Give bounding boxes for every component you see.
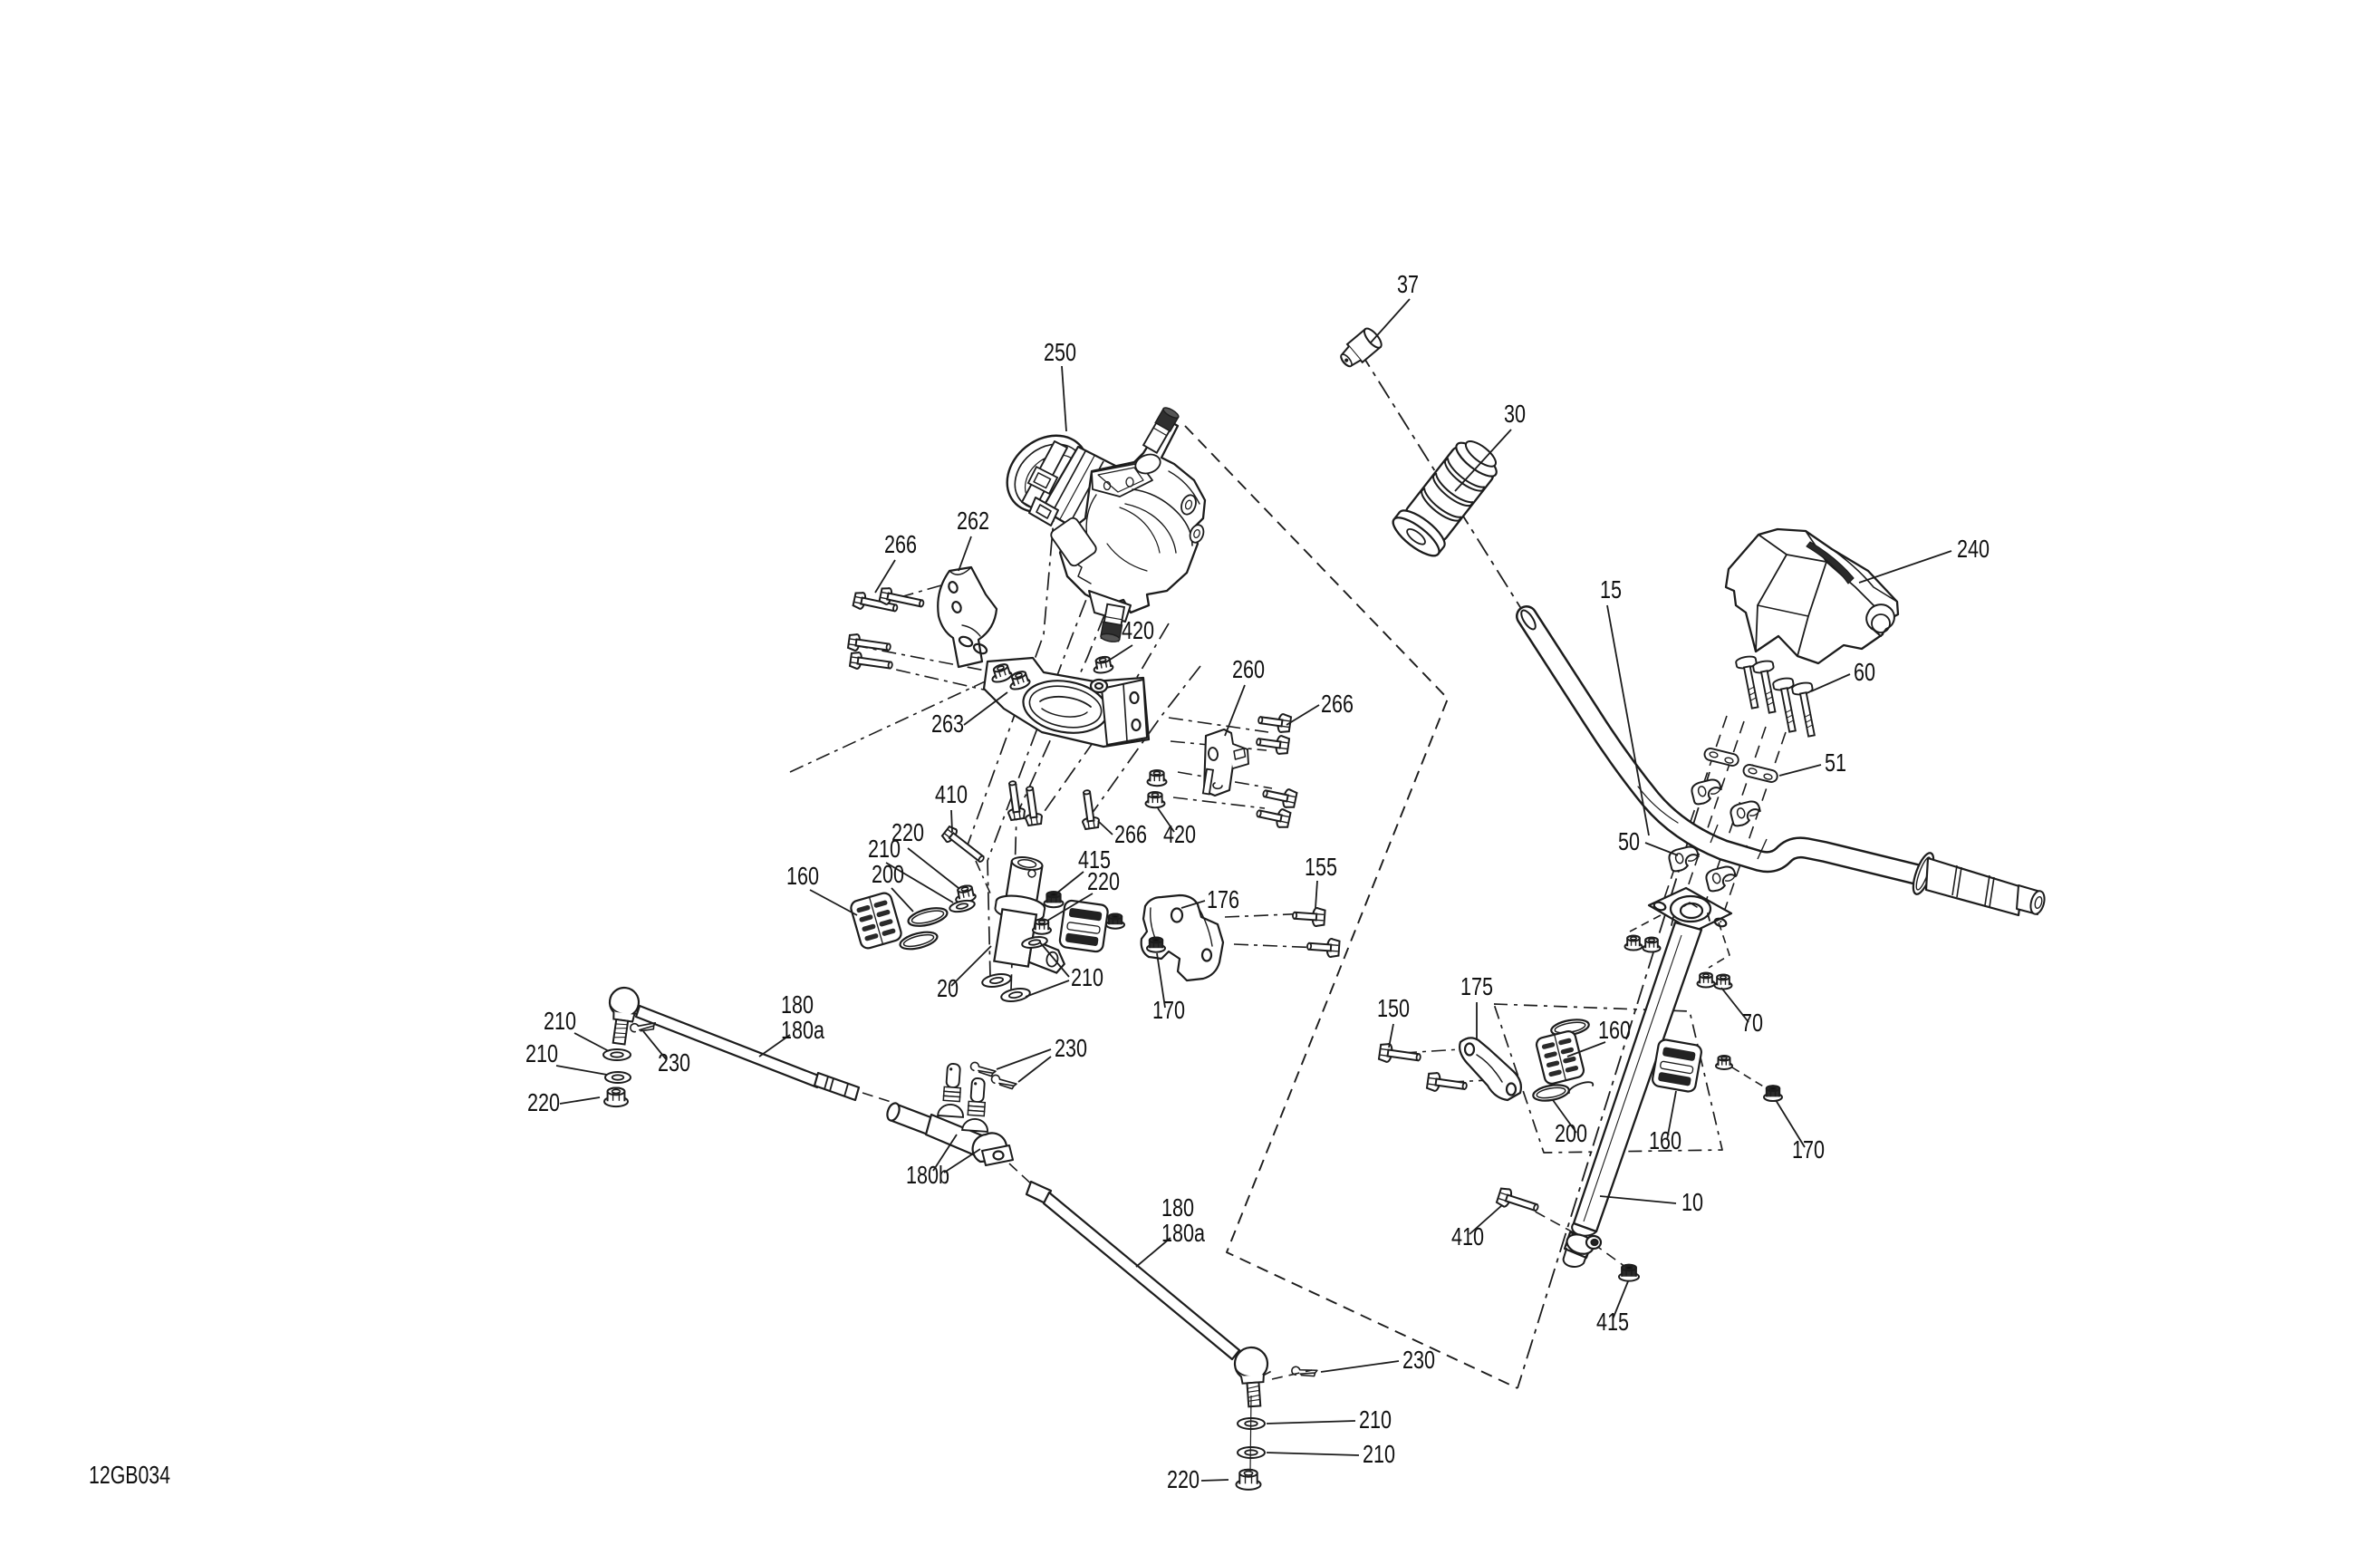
svg-text:20: 20 (937, 974, 959, 1002)
svg-text:262: 262 (957, 507, 989, 535)
svg-text:210: 210 (525, 1039, 558, 1067)
svg-text:30: 30 (1504, 400, 1526, 428)
svg-text:263: 263 (931, 710, 964, 738)
svg-text:70: 70 (1741, 1009, 1763, 1037)
svg-text:170: 170 (1792, 1135, 1825, 1164)
svg-text:240: 240 (1957, 535, 1990, 563)
svg-text:176: 176 (1207, 885, 1239, 913)
svg-text:260: 260 (1232, 655, 1265, 683)
svg-text:210: 210 (868, 835, 901, 863)
svg-text:415: 415 (1596, 1308, 1629, 1336)
svg-text:210: 210 (1071, 963, 1103, 991)
svg-text:155: 155 (1305, 853, 1337, 881)
svg-text:180b: 180b (906, 1161, 949, 1189)
svg-text:12GB034: 12GB034 (89, 1461, 170, 1489)
svg-text:200: 200 (1555, 1119, 1587, 1147)
svg-text:210: 210 (544, 1007, 576, 1035)
svg-text:250: 250 (1044, 338, 1076, 366)
svg-text:210: 210 (1363, 1440, 1395, 1468)
svg-text:180a: 180a (1161, 1219, 1205, 1247)
svg-text:230: 230 (1402, 1346, 1435, 1374)
svg-text:60: 60 (1854, 658, 1875, 686)
svg-text:160: 160 (1598, 1016, 1631, 1044)
svg-text:200: 200 (872, 860, 904, 888)
svg-text:15: 15 (1600, 575, 1622, 604)
svg-text:266: 266 (884, 530, 917, 558)
svg-text:51: 51 (1825, 748, 1846, 777)
svg-text:180a: 180a (781, 1016, 824, 1044)
svg-text:220: 220 (1167, 1465, 1200, 1493)
svg-text:230: 230 (1055, 1034, 1087, 1062)
svg-text:160: 160 (1649, 1126, 1681, 1154)
svg-text:175: 175 (1460, 972, 1493, 1000)
svg-text:170: 170 (1152, 996, 1185, 1024)
svg-text:37: 37 (1397, 270, 1419, 298)
svg-text:230: 230 (658, 1048, 690, 1077)
svg-text:180: 180 (781, 990, 814, 1019)
svg-text:160: 160 (786, 862, 819, 890)
svg-text:220: 220 (527, 1088, 560, 1116)
svg-text:220: 220 (1087, 867, 1120, 895)
svg-text:266: 266 (1321, 690, 1354, 718)
svg-text:180: 180 (1161, 1193, 1194, 1222)
svg-text:410: 410 (935, 780, 968, 808)
svg-text:10: 10 (1681, 1188, 1703, 1216)
svg-text:50: 50 (1618, 827, 1640, 855)
svg-text:210: 210 (1359, 1405, 1392, 1434)
svg-text:266: 266 (1114, 820, 1147, 848)
svg-text:150: 150 (1377, 994, 1410, 1022)
svg-text:420: 420 (1122, 616, 1154, 644)
